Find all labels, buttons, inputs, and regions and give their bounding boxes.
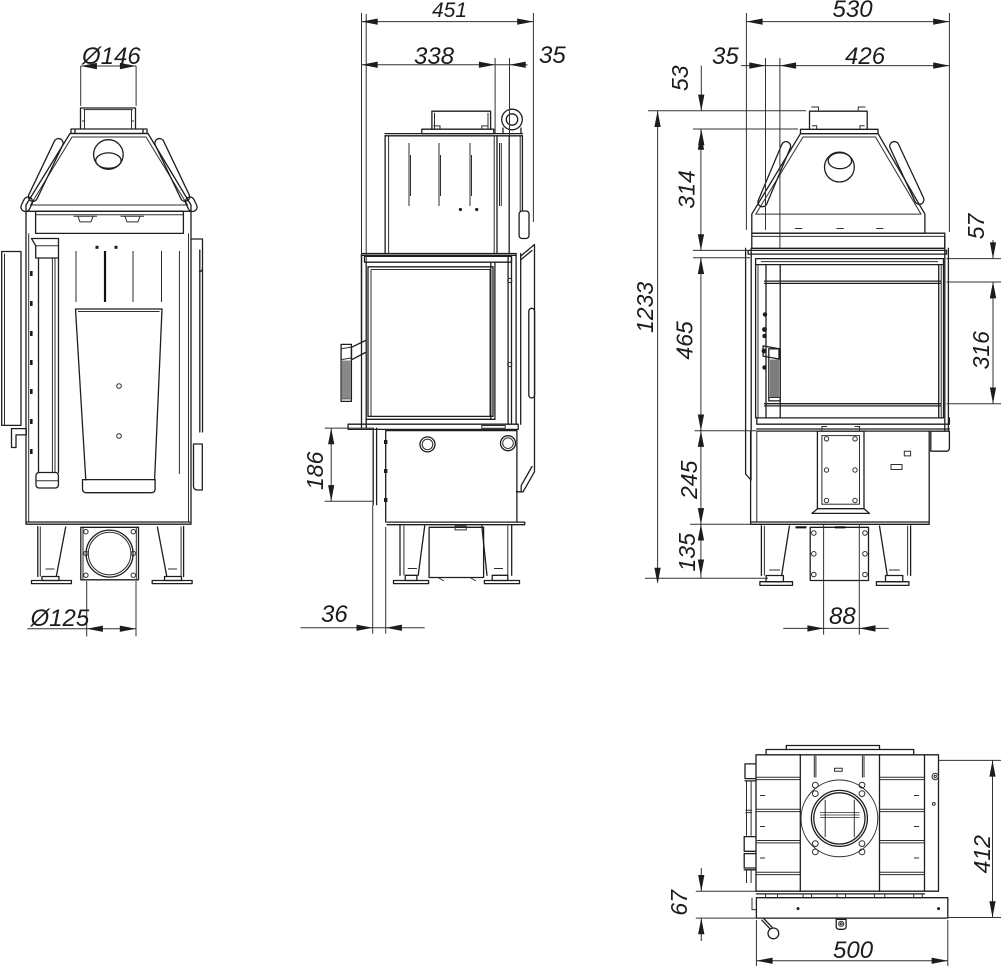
svg-text:426: 426 [845,43,886,70]
svg-text:35: 35 [712,43,739,70]
svg-text:465: 465 [672,321,698,360]
svg-text:88: 88 [829,603,856,630]
svg-text:451: 451 [432,0,467,22]
svg-text:314: 314 [674,170,700,208]
svg-text:35: 35 [539,42,566,69]
svg-text:338: 338 [414,43,455,70]
svg-text:53: 53 [667,65,693,91]
svg-text:Ø146: Ø146 [81,43,141,70]
svg-text:1233: 1233 [632,282,658,333]
svg-text:412: 412 [969,835,995,874]
svg-text:135: 135 [674,533,700,572]
svg-text:Ø125: Ø125 [30,605,90,632]
svg-text:186: 186 [302,451,328,490]
svg-text:57: 57 [963,213,989,240]
svg-text:67: 67 [666,889,692,916]
svg-text:500: 500 [833,937,874,964]
svg-text:530: 530 [833,0,874,23]
svg-text:245: 245 [676,460,702,500]
svg-text:36: 36 [321,601,348,628]
svg-text:316: 316 [968,331,994,370]
